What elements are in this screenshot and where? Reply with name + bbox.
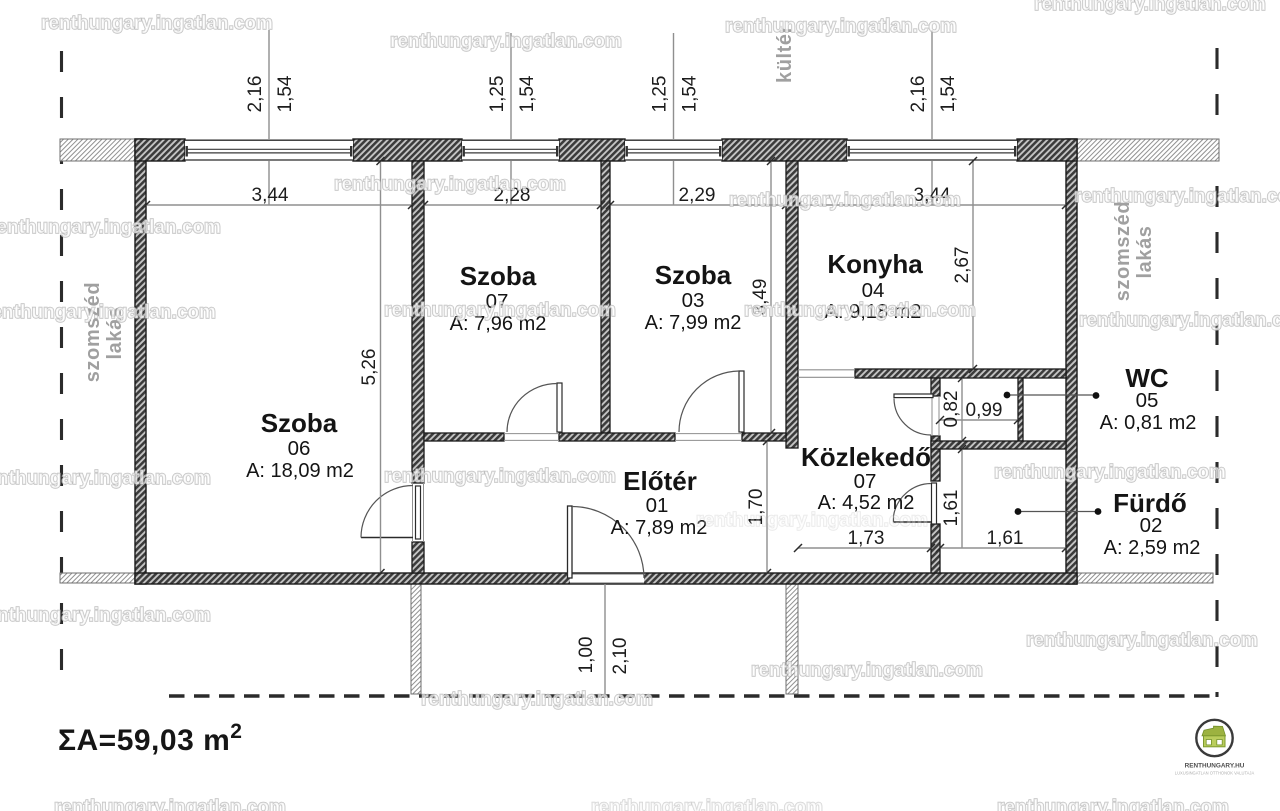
- svg-text:2,67: 2,67: [952, 247, 973, 284]
- svg-text:renthungary.ingatlan.com: renthungary.ingatlan.com: [744, 300, 976, 321]
- svg-text:ΣA=59,03 m2: ΣA=59,03 m2: [58, 720, 242, 757]
- svg-text:3,44: 3,44: [252, 185, 289, 206]
- svg-text:renthungary.ingatlan.com: renthungary.ingatlan.com: [54, 797, 286, 811]
- svg-text:07: 07: [854, 470, 877, 493]
- svg-text:RENTHUNGARY.HU: RENTHUNGARY.HU: [1185, 763, 1245, 770]
- svg-text:renthungary.ingatlan.com: renthungary.ingatlan.com: [1026, 630, 1258, 651]
- svg-text:renthungary.ingatlan.com: renthungary.ingatlan.com: [0, 605, 211, 626]
- svg-text:renthungary.ingatlan.com: renthungary.ingatlan.com: [384, 300, 616, 321]
- svg-text:2,16: 2,16: [245, 76, 266, 113]
- svg-text:5,26: 5,26: [359, 349, 380, 386]
- svg-text:1,25: 1,25: [650, 76, 671, 113]
- svg-text:Szoba: Szoba: [261, 408, 338, 438]
- svg-text:Szoba: Szoba: [460, 261, 537, 291]
- svg-text:Szoba: Szoba: [655, 260, 732, 290]
- svg-text:1,54: 1,54: [275, 75, 296, 112]
- svg-text:1,61: 1,61: [987, 528, 1024, 549]
- svg-text:renthungary.ingatlan.com: renthungary.ingatlan.com: [994, 462, 1226, 483]
- svg-text:renthungary.ingatlan.com: renthungary.ingatlan.com: [591, 797, 823, 811]
- svg-text:lakás: lakás: [1134, 225, 1156, 278]
- svg-text:renthungary.ingatlan.com: renthungary.ingatlan.com: [1074, 186, 1280, 207]
- svg-text:renthungary.ingatlan.com: renthungary.ingatlan.com: [1079, 310, 1280, 331]
- svg-text:0,99: 0,99: [966, 400, 1003, 421]
- svg-text:0,82: 0,82: [941, 391, 962, 428]
- svg-text:szomszéd: szomszéd: [82, 282, 104, 382]
- svg-text:A: 7,99 m2: A: 7,99 m2: [645, 312, 742, 334]
- svg-text:renthungary.ingatlan.com: renthungary.ingatlan.com: [0, 302, 216, 323]
- svg-text:1,73: 1,73: [848, 528, 885, 549]
- svg-text:renthungary.ingatlan.com: renthungary.ingatlan.com: [0, 217, 221, 238]
- svg-text:01: 01: [646, 494, 669, 517]
- svg-text:renthungary.ingatlan.com: renthungary.ingatlan.com: [1034, 0, 1266, 15]
- svg-text:A: 7,89 m2: A: 7,89 m2: [611, 517, 708, 539]
- svg-text:renthungary.ingatlan.com: renthungary.ingatlan.com: [0, 468, 211, 489]
- svg-text:1,61: 1,61: [941, 490, 962, 527]
- svg-text:LUXUSINGATLAN OTTHONOK VALUTAJ: LUXUSINGATLAN OTTHONOK VALUTAJA: [1175, 771, 1255, 776]
- svg-text:1,25: 1,25: [487, 76, 508, 113]
- svg-text:04: 04: [862, 279, 885, 302]
- svg-text:Konyha: Konyha: [827, 249, 923, 279]
- svg-text:renthungary.ingatlan.com: renthungary.ingatlan.com: [334, 174, 566, 195]
- svg-text:2,29: 2,29: [679, 185, 716, 206]
- svg-text:renthungary.ingatlan.com: renthungary.ingatlan.com: [390, 31, 622, 52]
- svg-text:1,54: 1,54: [680, 75, 701, 112]
- svg-text:2,16: 2,16: [908, 76, 929, 113]
- svg-text:renthungary.ingatlan.com: renthungary.ingatlan.com: [725, 16, 957, 37]
- svg-text:A: 2,59 m2: A: 2,59 m2: [1104, 537, 1201, 559]
- svg-text:renthungary.ingatlan.com: renthungary.ingatlan.com: [421, 689, 653, 710]
- svg-text:renthungary.ingatlan.com: renthungary.ingatlan.com: [729, 190, 961, 211]
- svg-text:2,10: 2,10: [610, 638, 631, 675]
- svg-text:Előtér: Előtér: [623, 466, 697, 496]
- svg-text:renthungary.ingatlan.com: renthungary.ingatlan.com: [997, 797, 1229, 811]
- svg-text:A: 18,09 m2: A: 18,09 m2: [246, 460, 354, 482]
- svg-text:03: 03: [682, 289, 705, 312]
- svg-text:Közlekedő: Közlekedő: [801, 442, 931, 472]
- svg-text:renthungary.ingatlan.com: renthungary.ingatlan.com: [696, 510, 928, 531]
- svg-text:02: 02: [1140, 514, 1163, 537]
- svg-text:renthungary.ingatlan.com: renthungary.ingatlan.com: [751, 660, 983, 681]
- svg-text:szomszéd: szomszéd: [1112, 201, 1134, 301]
- svg-text:06: 06: [288, 437, 311, 460]
- svg-text:1,54: 1,54: [938, 75, 959, 112]
- svg-text:1,54: 1,54: [517, 75, 538, 112]
- svg-text:05: 05: [1136, 389, 1159, 412]
- svg-text:renthungary.ingatlan.com: renthungary.ingatlan.com: [41, 13, 273, 34]
- svg-text:1,00: 1,00: [576, 637, 597, 674]
- svg-text:renthungary.ingatlan.com: renthungary.ingatlan.com: [384, 466, 616, 487]
- svg-text:A: 0,81 m2: A: 0,81 m2: [1100, 412, 1197, 434]
